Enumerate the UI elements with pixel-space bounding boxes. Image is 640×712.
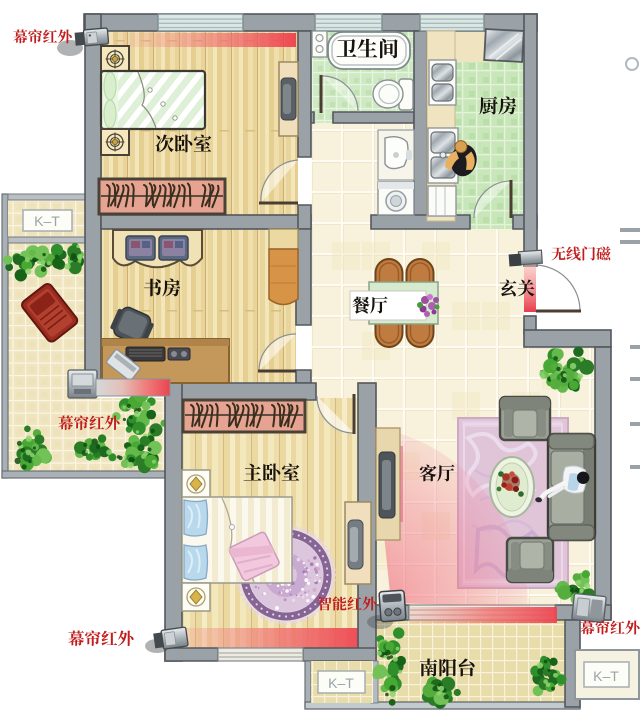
svg-text:K–T: K–T — [328, 675, 354, 691]
svg-text:K–T: K–T — [34, 213, 60, 229]
svg-text:K–T: K–T — [593, 668, 619, 684]
